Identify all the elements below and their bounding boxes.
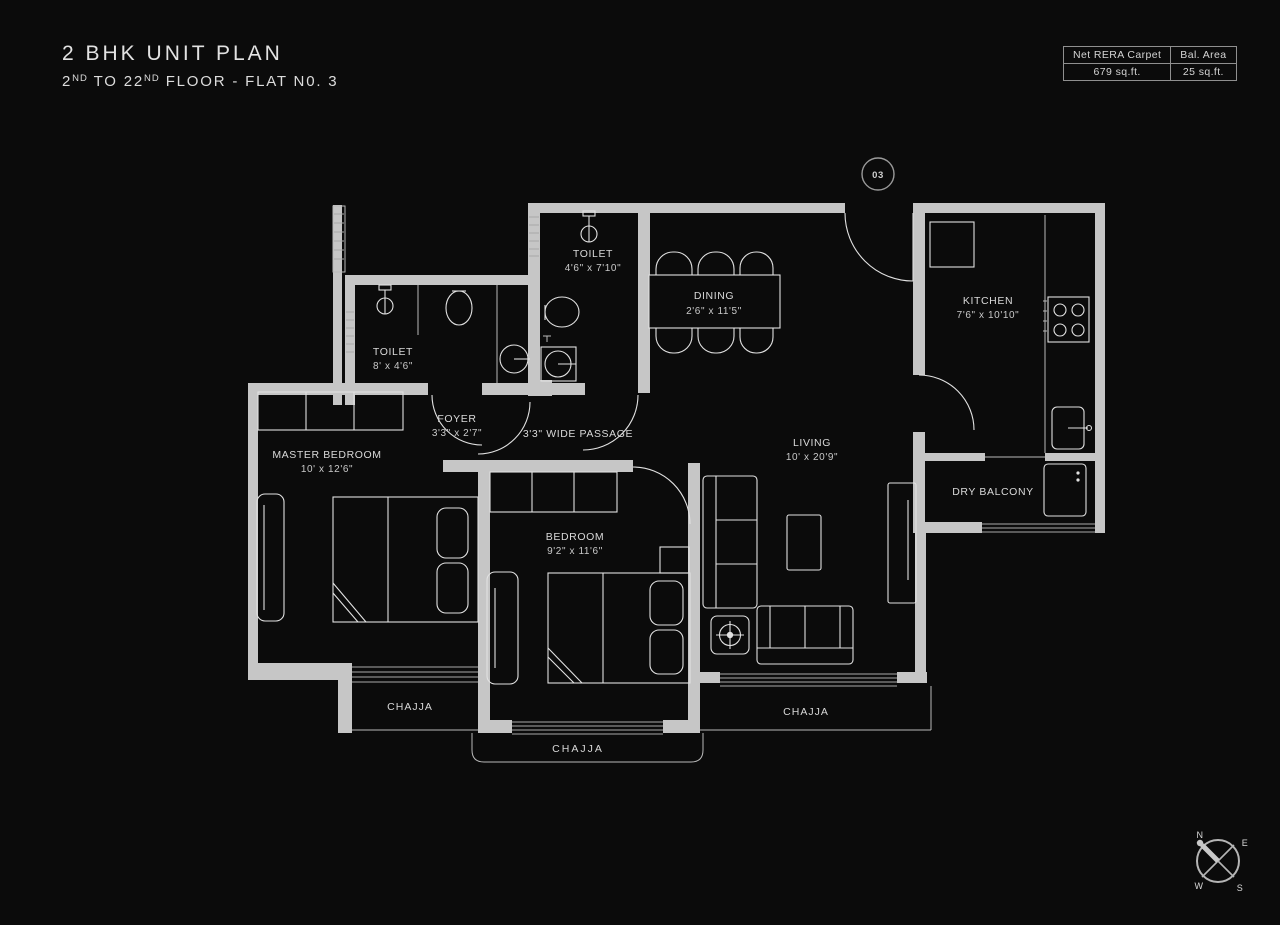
shower-icon [377,285,393,314]
floor-plan-drawing: 03 TOILET 4'6" x 7'10" TOILET 8' x 4'6" … [0,0,1280,925]
bed [548,573,690,683]
area-table: Net RERA Carpet Bal. Area 679 sq.ft. 25 … [1063,46,1237,81]
dresser [487,572,518,684]
room-dims-living: 10' x 20'9" [786,452,838,463]
pillow [437,508,468,558]
room-label-toilet-left: TOILET [373,346,413,358]
room-label-master-bedroom: MASTER BEDROOM [272,449,381,461]
compass-icon: N E W S [1194,830,1248,893]
room-label-toilet-top: TOILET [573,248,613,260]
room-label-chajja-right: CHAJJA [783,706,829,718]
room-dims-kitchen: 7'6" x 10'10" [957,310,1020,321]
pillow [437,563,468,613]
room-label-dining: DINING [694,290,734,302]
washbasin-icon [500,345,530,373]
wardrobe [490,472,617,512]
room-dims-bedroom: 9'2" x 11'6" [547,546,603,557]
kitchen-door [919,375,974,430]
wc-icon [446,291,472,325]
unit-number: 03 [872,170,884,181]
tv-unit [888,483,916,603]
chajja-outlines [352,686,931,762]
floor-plan-page: 2 BHK UNIT PLAN 2ND TO 22ND FLOOR - FLAT… [0,0,1280,925]
room-label-chajja-bottom: CHAJJA [552,743,604,755]
coffee-table [787,515,821,570]
kitchen-fixtures [930,215,1092,516]
bedroom-door [633,467,690,524]
washbasin-icon [541,347,576,381]
compass-east-label: E [1242,838,1249,848]
room-label-dry-balcony: DRY BALCONY [952,486,1034,498]
room-label-foyer: FOYER [437,413,476,425]
area-table-value-rera: 679 sq.ft. [1064,64,1171,81]
room-label-passage: 3'3" WIDE PASSAGE [523,428,633,440]
bedside-table [660,547,689,573]
washing-machine-icon [1044,464,1086,516]
sofa-l-shape [703,476,757,608]
wardrobe [258,392,403,430]
dresser [257,494,284,621]
subtitle-part: 2 [62,73,72,90]
room-label-kitchen: KITCHEN [963,295,1013,307]
living-room-furniture [703,476,916,664]
page-subtitle: 2ND TO 22ND FLOOR - FLAT N0. 3 [62,73,338,90]
room-label-chajja-left: CHAJJA [387,701,433,713]
compass-south-label: S [1237,883,1244,893]
area-table-header-balcony: Bal. Area [1171,47,1236,64]
area-table-value-balcony: 25 sq.ft. [1171,64,1236,81]
sink-icon [1052,407,1092,449]
room-dims-dining: 2'6" x 11'5" [686,306,742,317]
kitchen-duct [930,222,974,267]
master-bedroom-furniture [257,392,478,622]
wc-icon [545,297,579,327]
ceiling-fan-icon [711,616,749,654]
door-swings [432,213,974,524]
entrance-door [845,213,913,281]
page-title: 2 BHK UNIT PLAN [62,42,338,66]
room-dims-foyer: 3'3" x 2'7" [432,428,482,439]
subtitle-superscript: ND [72,73,88,84]
subtitle-part: FLOOR - FLAT N0. 3 [160,73,339,90]
room-label-living: LIVING [793,437,831,449]
hob-icon [1043,297,1089,342]
subtitle-superscript: ND [144,73,160,84]
sofa-two-seater [757,606,853,664]
area-table-header-rera: Net RERA Carpet [1064,47,1171,64]
plan-title-block: 2 BHK UNIT PLAN 2ND TO 22ND FLOOR - FLAT… [62,42,338,90]
shower-icon [581,211,597,242]
compass-west-label: W [1194,881,1203,891]
compass-north-label: N [1196,830,1203,840]
bedroom-furniture [487,472,690,684]
unit-number-marker: 03 [862,158,894,190]
pillow [650,630,683,674]
pillow [650,581,683,625]
room-dims-master-bedroom: 10' x 12'6" [301,464,353,475]
room-label-bedroom: BEDROOM [546,531,604,543]
bed [333,497,478,622]
toilet-top-door [583,395,638,450]
room-dims-toilet-left: 8' x 4'6" [373,361,413,372]
dining-set [649,252,780,353]
room-dims-toilet-top: 4'6" x 7'10" [565,263,621,274]
subtitle-part: TO 22 [88,73,144,90]
